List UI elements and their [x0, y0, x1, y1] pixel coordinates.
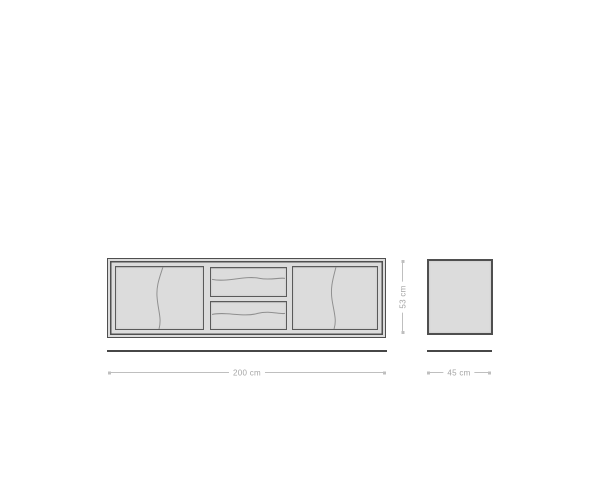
wood-grain-line: [293, 267, 377, 329]
width-dimension-label: 200 cm: [229, 369, 265, 378]
wood-grain-line: [116, 267, 203, 329]
depth-dimension: 45 cm: [427, 368, 491, 378]
front-view-cabinet: [107, 258, 386, 338]
dimension-endpoint-icon: [108, 372, 111, 375]
front-baseline: [107, 350, 387, 352]
wood-grain-line: [211, 268, 286, 296]
wood-grain-line: [211, 302, 286, 329]
side-baseline: [427, 350, 492, 352]
right-door-panel: [292, 266, 378, 330]
height-dimension-label: 53 cm: [399, 281, 408, 312]
depth-dimension-label: 45 cm: [443, 369, 474, 378]
dimension-endpoint-icon: [488, 372, 491, 375]
width-dimension: 200 cm: [108, 368, 386, 378]
dimension-endpoint-icon: [402, 331, 405, 334]
bottom-drawer-panel: [210, 301, 287, 330]
dimension-endpoint-icon: [427, 372, 430, 375]
dimension-diagram: 200 cm 53 cm 45 cm: [0, 0, 600, 500]
top-drawer-panel: [210, 267, 287, 297]
left-door-panel: [115, 266, 204, 330]
dimension-endpoint-icon: [383, 372, 386, 375]
height-dimension: 53 cm: [397, 260, 409, 334]
dimension-endpoint-icon: [402, 260, 405, 263]
side-view-panel: [427, 259, 493, 335]
